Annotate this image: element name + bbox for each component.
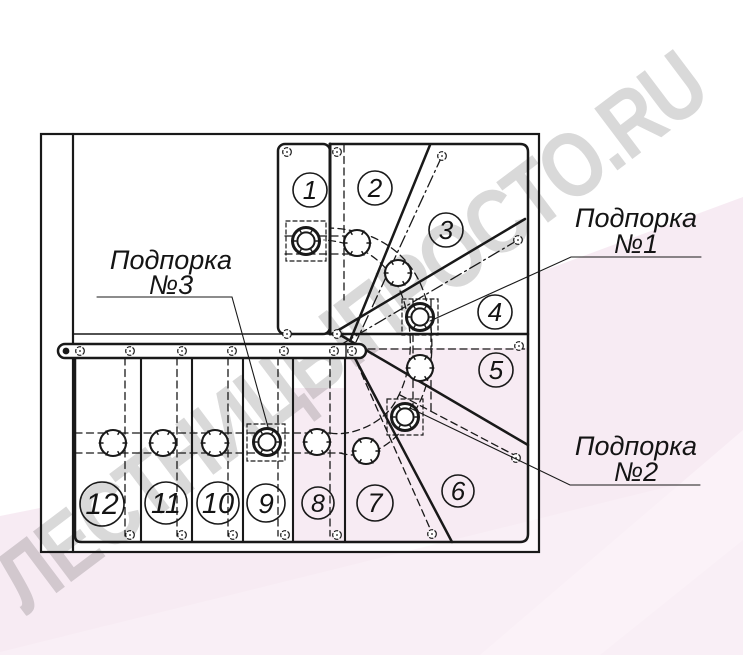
svg-text:8: 8 — [311, 490, 325, 518]
svg-text:№1: №1 — [614, 229, 658, 259]
svg-text:5: 5 — [489, 355, 504, 385]
fastener-icon — [229, 531, 238, 540]
svg-text:10: 10 — [202, 488, 234, 520]
baluster — [201, 430, 229, 456]
support-post-1 — [406, 304, 434, 331]
fastener-icon — [283, 330, 292, 339]
step-number-12: 12 — [80, 482, 124, 526]
handrail — [58, 344, 366, 358]
baluster — [149, 430, 177, 456]
support-post-top — [292, 228, 320, 255]
fastener-icon — [515, 342, 524, 351]
step-number-1: 1 — [293, 173, 327, 207]
step-number-4: 4 — [478, 295, 512, 329]
fastener-icon — [333, 531, 342, 540]
baluster — [406, 355, 434, 381]
step-number-11: 11 — [145, 482, 187, 524]
fastener-icon — [126, 347, 135, 356]
fastener-icon — [178, 531, 187, 540]
fastener-icon — [514, 236, 523, 245]
svg-text:2: 2 — [367, 173, 383, 203]
svg-text:№2: №2 — [614, 457, 658, 487]
fastener-icon — [348, 347, 357, 356]
fastener-icon — [281, 531, 290, 540]
fastener-icon — [178, 347, 187, 356]
step-number-2: 2 — [358, 171, 392, 205]
baluster — [343, 230, 371, 256]
baluster — [384, 260, 412, 286]
baluster — [303, 429, 331, 455]
svg-text:11: 11 — [151, 488, 181, 520]
baluster — [352, 438, 380, 464]
fastener-icon — [330, 347, 339, 356]
rail-end-cap — [63, 348, 70, 355]
support-post-3 — [253, 429, 281, 456]
step-number-9: 9 — [247, 484, 285, 522]
fastener-icon — [283, 148, 292, 157]
fastener-icon — [428, 530, 437, 539]
support-post-2 — [391, 404, 419, 431]
fastener-icon — [333, 330, 342, 339]
baluster — [99, 430, 127, 456]
svg-text:1: 1 — [303, 175, 317, 205]
fastener-icon — [76, 347, 85, 356]
fastener-icon — [438, 152, 447, 161]
fastener-icon — [280, 347, 289, 356]
svg-text:9: 9 — [258, 488, 274, 519]
svg-text:3: 3 — [439, 215, 454, 245]
support-label-3: Подпорка №3 — [110, 245, 232, 300]
staircase-plan-page: ЛЕСТНИЦЫПРОСТО.RU — [0, 0, 743, 655]
svg-text:№3: №3 — [149, 270, 193, 300]
fastener-icon — [228, 347, 237, 356]
stair-plan-drawing: ЛЕСТНИЦЫПРОСТО.RU — [0, 0, 743, 655]
svg-text:4: 4 — [488, 297, 502, 327]
svg-text:6: 6 — [451, 476, 466, 506]
svg-text:12: 12 — [85, 488, 119, 521]
fastener-icon — [126, 531, 135, 540]
step-number-10: 10 — [197, 482, 239, 524]
fastener-icon — [333, 148, 342, 157]
svg-text:7: 7 — [367, 488, 383, 518]
